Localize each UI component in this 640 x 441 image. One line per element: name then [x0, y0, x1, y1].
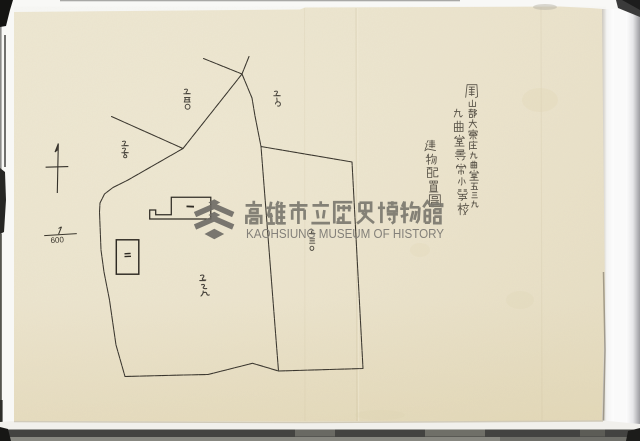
svg-text:600: 600 — [50, 235, 64, 245]
svg-text:KAOHSIUNG MUSEUM OF HISTORY: KAOHSIUNG MUSEUM OF HISTORY — [246, 226, 444, 241]
